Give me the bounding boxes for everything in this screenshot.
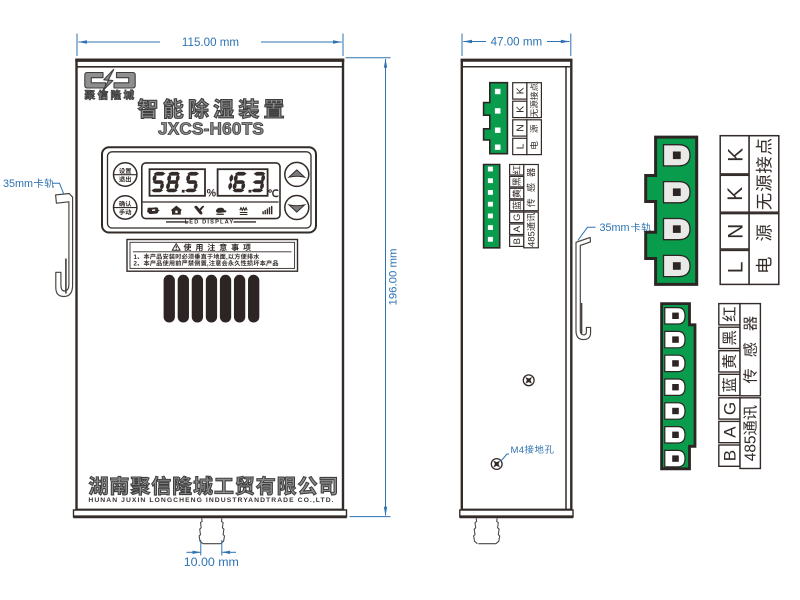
svg-text:35mm: 35mm <box>3 178 33 190</box>
svg-text:485: 485 <box>743 435 760 461</box>
svg-text:K: K <box>515 87 527 94</box>
svg-text:HUNAN JUXIN LONGCHENG INDUSTRY: HUNAN JUXIN LONGCHENG INDUSTRYANDTRADE C… <box>88 497 334 504</box>
svg-text:JXCS-H60TS: JXCS-H60TS <box>158 119 264 139</box>
svg-text:N: N <box>515 124 527 132</box>
svg-text:G: G <box>512 214 523 221</box>
svg-text:,: , <box>207 260 209 267</box>
svg-text:485: 485 <box>526 231 537 247</box>
svg-text:℃: ℃ <box>268 189 279 200</box>
svg-text:L: L <box>515 143 527 149</box>
svg-text:L: L <box>724 262 747 274</box>
svg-text:N: N <box>724 224 747 239</box>
svg-text:A: A <box>721 426 740 438</box>
svg-text:47.00 mm: 47.00 mm <box>491 36 543 49</box>
svg-text:B: B <box>512 238 523 244</box>
svg-text:A: A <box>512 225 523 232</box>
svg-text:2: 2 <box>134 260 138 267</box>
svg-text:M4: M4 <box>511 445 525 456</box>
svg-text:,: , <box>226 254 228 261</box>
svg-text:%: % <box>207 188 217 200</box>
svg-text:K: K <box>724 187 747 201</box>
svg-text:G: G <box>721 402 740 415</box>
svg-text:B: B <box>721 450 740 461</box>
svg-text:10.00 mm: 10.00 mm <box>184 555 239 569</box>
svg-text:196.00 mm: 196.00 mm <box>388 249 400 306</box>
svg-text:115.00 mm: 115.00 mm <box>182 36 239 49</box>
svg-text:35mm: 35mm <box>600 222 630 234</box>
svg-text:LED DISPLAY: LED DISPLAY <box>185 220 235 226</box>
svg-text:K: K <box>515 106 527 113</box>
svg-text:K: K <box>724 148 747 162</box>
